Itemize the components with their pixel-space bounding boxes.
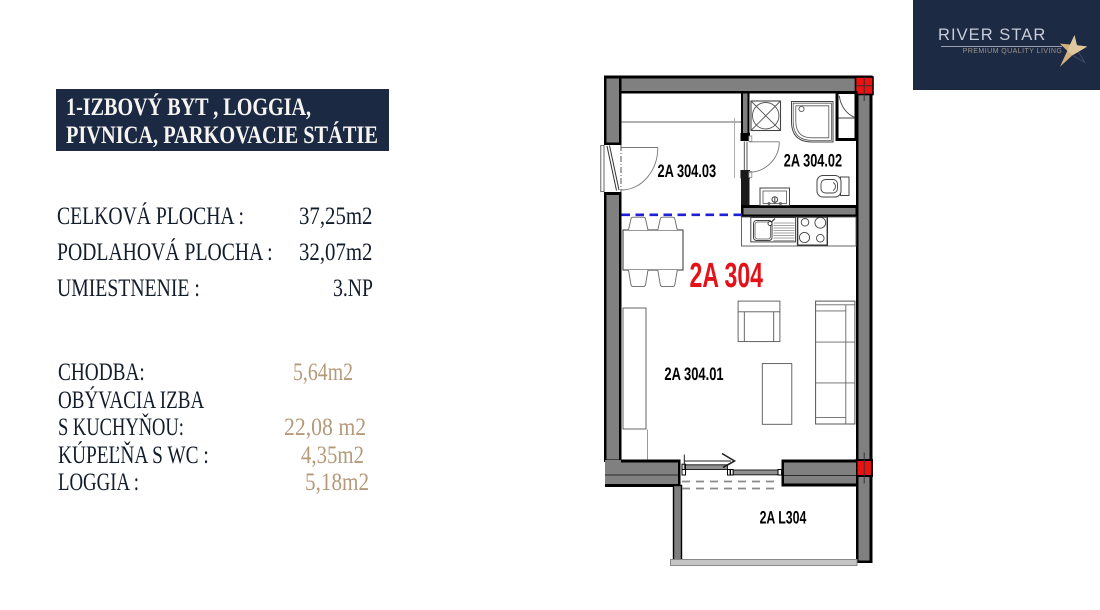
svg-text:2A 304.01: 2A 304.01 bbox=[664, 364, 723, 384]
svg-text:2A 304: 2A 304 bbox=[690, 256, 764, 295]
svg-text:2A L304: 2A L304 bbox=[760, 508, 807, 528]
svg-text:2A 304.03: 2A 304.03 bbox=[658, 161, 717, 181]
svg-text:2A 304.02: 2A 304.02 bbox=[784, 150, 842, 170]
